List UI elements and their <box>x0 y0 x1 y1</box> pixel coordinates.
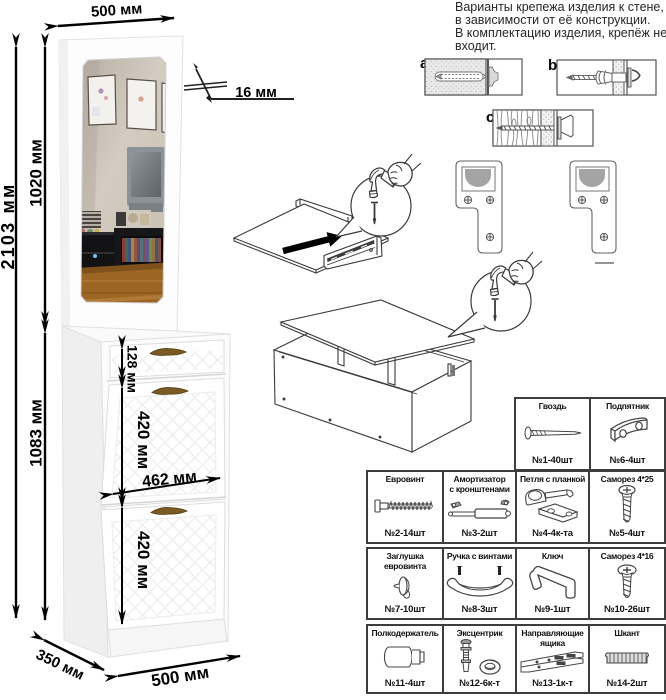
svg-text:b: b <box>548 57 557 74</box>
svg-text:2103 мм: 2103 мм <box>0 182 18 269</box>
svg-text:420 мм: 420 мм <box>134 411 153 469</box>
svg-text:1020 мм: 1020 мм <box>27 139 46 207</box>
svg-text:350 мм: 350 мм <box>33 646 87 684</box>
svg-text:420 мм: 420 мм <box>134 531 153 589</box>
svg-text:128 мм: 128 мм <box>125 345 141 393</box>
svg-text:1083 мм: 1083 мм <box>27 399 46 467</box>
svg-text:500 мм: 500 мм <box>90 0 142 21</box>
svg-text:500 мм: 500 мм <box>150 663 211 691</box>
svg-text:16 мм: 16 мм <box>235 85 277 101</box>
